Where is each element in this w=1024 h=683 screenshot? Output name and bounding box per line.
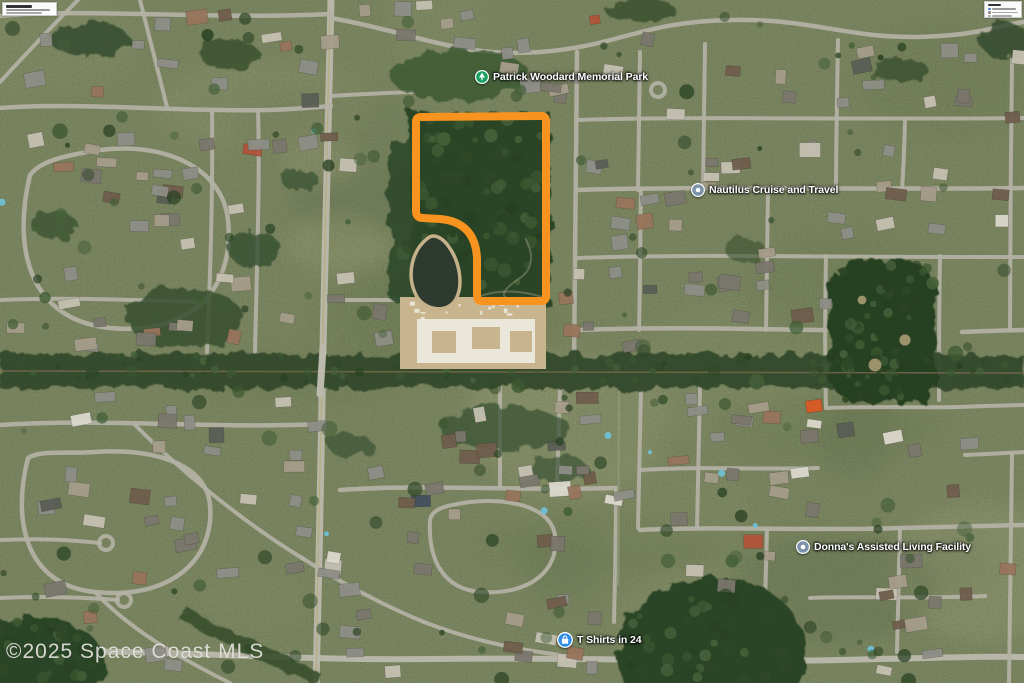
shopping-bag-icon (557, 632, 573, 648)
poi-label: Patrick Woodard Memorial Park (493, 71, 648, 83)
canal-bridge (320, 348, 323, 394)
satellite-imagery (0, 0, 1024, 683)
construction-site (400, 297, 546, 369)
poi-label: T Shirts in 24 (577, 634, 642, 646)
poi-label: Nautilus Cruise and Travel (709, 184, 838, 196)
park-tree-icon (475, 70, 489, 84)
poi-nautilus-cruise-and-travel[interactable]: Nautilus Cruise and Travel (691, 183, 838, 197)
mls-watermark: ©2025 Space Coast MLS (6, 640, 264, 664)
map-title-card (2, 2, 57, 16)
poi-t-shirts-in-24[interactable]: T Shirts in 24 (557, 632, 642, 648)
place-dot-icon (796, 540, 810, 554)
mini-legend-card (984, 1, 1022, 18)
poi-label: Donna's Assisted Living Facility (814, 541, 971, 553)
place-dot-icon (691, 183, 705, 197)
poi-patrick-woodard-memorial-park[interactable]: Patrick Woodard Memorial Park (475, 70, 648, 84)
poi-donnas-assisted-living-facility[interactable]: Donna's Assisted Living Facility (796, 540, 971, 554)
satellite-map[interactable]: Patrick Woodard Memorial Park Nautilus C… (0, 0, 1024, 683)
